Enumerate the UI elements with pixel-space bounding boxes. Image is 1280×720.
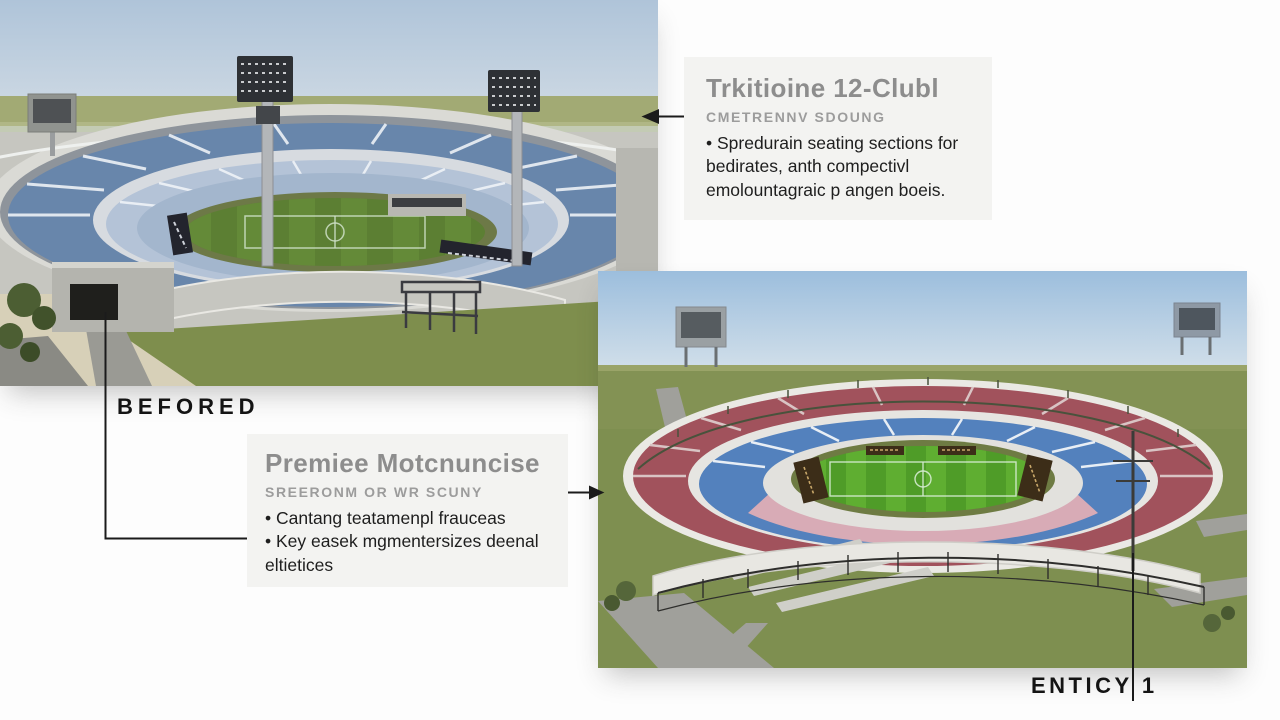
callout-top-bullet: • Spredurain seating sections for bedira…	[706, 132, 970, 202]
pavilion	[388, 194, 466, 216]
before-image-panel	[0, 0, 658, 386]
callout-middle-subtitle: SREERONM OR WR SCUNY	[265, 484, 550, 500]
callout-middle-title: Premiee Motcnuncise	[265, 448, 550, 479]
after-image-panel	[598, 271, 1247, 668]
right-stand-wall	[616, 148, 658, 290]
callout-top-subtitle: CMETRENNV SDOUNG	[706, 109, 970, 125]
before-stadium-render	[0, 0, 658, 386]
infographic-canvas: BEFORED ENTICY 1 Trkitioine 12-Clubl CME…	[0, 0, 1280, 720]
after-stadium-render	[598, 271, 1247, 668]
before-label: BEFORED	[117, 394, 260, 420]
callout-top-title: Trkitioine 12-Clubl	[706, 73, 970, 104]
callout-top-box: Trkitioine 12-Clubl CMETRENNV SDOUNG • S…	[684, 57, 992, 220]
entrance-tunnel	[52, 262, 174, 332]
pitch	[791, 440, 1055, 518]
callout-middle-bullet-2: • Key easek mgmentersizes deenal eltieti…	[265, 530, 550, 577]
after-label: ENTICY 1	[1031, 673, 1158, 699]
callout-middle-bullet-1: • Cantang teatamenpl frauceas	[265, 507, 550, 530]
callout-middle-box: Premiee Motcnuncise SREERONM OR WR SCUNY…	[247, 434, 568, 587]
arrow-right-icon	[568, 487, 602, 498]
